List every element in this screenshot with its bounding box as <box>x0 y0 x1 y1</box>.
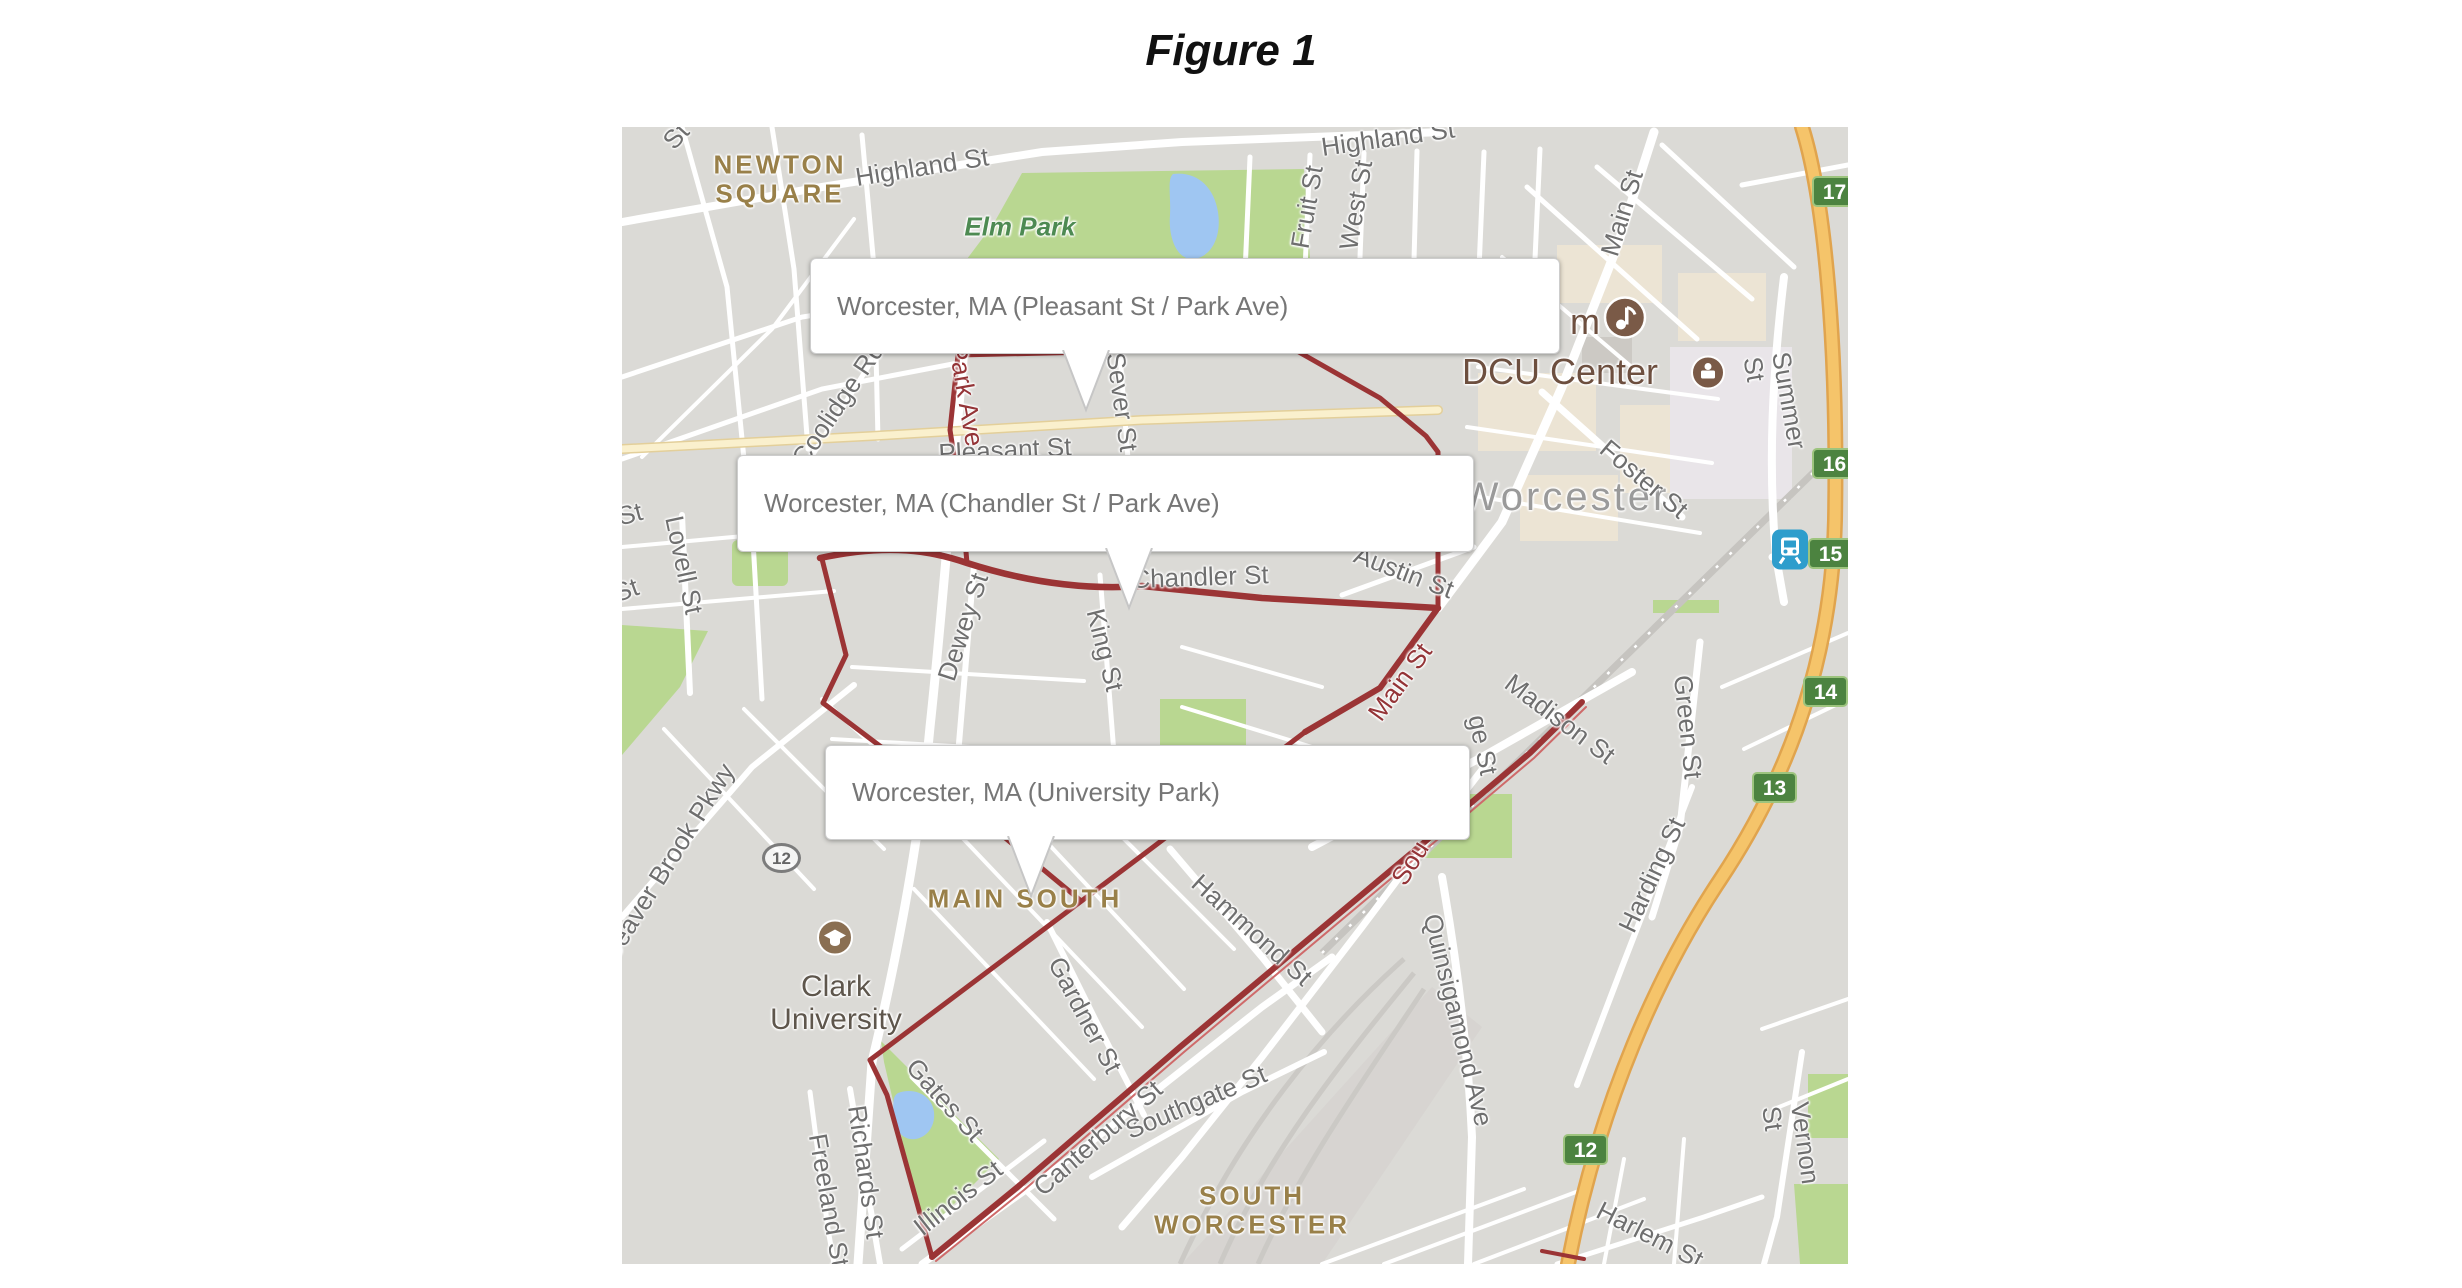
route-badge-12: 12 <box>1563 1134 1608 1165</box>
map-label-sou: Sou <box>1386 836 1435 890</box>
map-callout-label: Worcester, MA (Pleasant St / Park Ave) <box>811 259 1559 353</box>
map-callout-worcester-ma-chandler-st-park-ave: Worcester, MA (Chandler St / Park Ave) <box>737 455 1474 552</box>
figure-title: Figure 1 <box>0 26 2462 76</box>
map-label-gardner-st: Gardner St <box>1043 952 1128 1078</box>
worcester-map: NEWTON SQUAREMAIN SOUTHSOUTH WORCESTERWo… <box>622 127 1848 1264</box>
map-label-harlem-st: Harlem St <box>1592 1196 1708 1264</box>
map-label-west-st: West St <box>1334 158 1378 252</box>
map-label-green-st: Green St <box>1668 674 1707 780</box>
map-label-st: St <box>622 497 646 531</box>
stadium-icon <box>1689 354 1727 397</box>
map-callout-worcester-ma-pleasant-st-park-ave: Worcester, MA (Pleasant St / Park Ave) <box>810 258 1560 354</box>
map-label-elm-park: Elm Park <box>964 213 1075 242</box>
map-callout-label: Worcester, MA (University Park) <box>826 746 1469 839</box>
map-label-south-worcester: SOUTH WORCESTER <box>1154 1181 1350 1238</box>
map-label-hammond-st: Hammond St <box>1186 869 1318 992</box>
university-icon <box>815 918 855 963</box>
map-label-freeland-st: Freeland St <box>803 1131 854 1264</box>
map-label-illinois-st: Illinois St <box>908 1155 1008 1242</box>
callout-pointer-icon <box>1061 350 1111 414</box>
train-station-icon <box>1771 529 1809 576</box>
map-label-madison-st: Madison St <box>1499 668 1620 769</box>
map-label-beaver-brook-pkwy: Beaver Brook Pkwy <box>622 758 740 966</box>
map-label-m: m <box>1570 302 1600 342</box>
map-label-dewey-st: Dewey St <box>932 570 994 685</box>
map-label-richards-st: Richards St <box>842 1103 889 1240</box>
map-label-lovell-st: Lovell St <box>660 513 709 617</box>
route-shield-12: 12 <box>762 843 801 873</box>
music-venue-icon <box>1602 295 1648 346</box>
map-label-main-st: Main St <box>1363 638 1438 726</box>
map-label-king-st: King St <box>1081 606 1129 694</box>
callout-pointer-icon <box>1006 836 1056 900</box>
map-label-gates-st: Gates St <box>901 1053 990 1147</box>
map-label-highland-st: Highland St <box>853 142 990 191</box>
callout-pointer-icon <box>1104 548 1154 612</box>
map-callout-worcester-ma-university-park: Worcester, MA (University Park) <box>825 745 1470 840</box>
map-label-main-st: Main St <box>1595 167 1648 260</box>
map-callout-label: Worcester, MA (Chandler St / Park Ave) <box>738 456 1473 551</box>
route-badge-15: 15 <box>1808 538 1848 569</box>
map-label-harding-st: Harding St <box>1613 813 1691 936</box>
map-label-coolidge-rd: Coolidge Rd <box>786 337 890 472</box>
map-label-clark-university: Clark University <box>770 970 902 1036</box>
map-label-st: St <box>657 127 695 155</box>
map-label-highland-st: Highland St <box>1319 127 1456 162</box>
map-label-dcu-center: DCU Center <box>1462 352 1658 392</box>
map-label-quinsigamond-ave: Quinsigamond Ave <box>1418 911 1498 1129</box>
map-label-fruit-st: Fruit St <box>1286 163 1329 250</box>
map-label-park-ave: Park Ave <box>943 342 989 449</box>
route-badge-14: 14 <box>1803 676 1848 707</box>
map-label-newton-square: NEWTON SQUARE <box>713 150 846 207</box>
map-label-vernon-st: Vernon St <box>1757 1100 1825 1190</box>
figure-page: Figure 1 <box>0 0 2462 1288</box>
route-badge-16: 16 <box>1812 448 1848 479</box>
route-badge-13: 13 <box>1752 772 1797 803</box>
route-badge-17: 17 <box>1812 176 1848 207</box>
map-label-summer-st: Summer St <box>1738 350 1811 457</box>
map-label-st: St <box>622 572 642 607</box>
